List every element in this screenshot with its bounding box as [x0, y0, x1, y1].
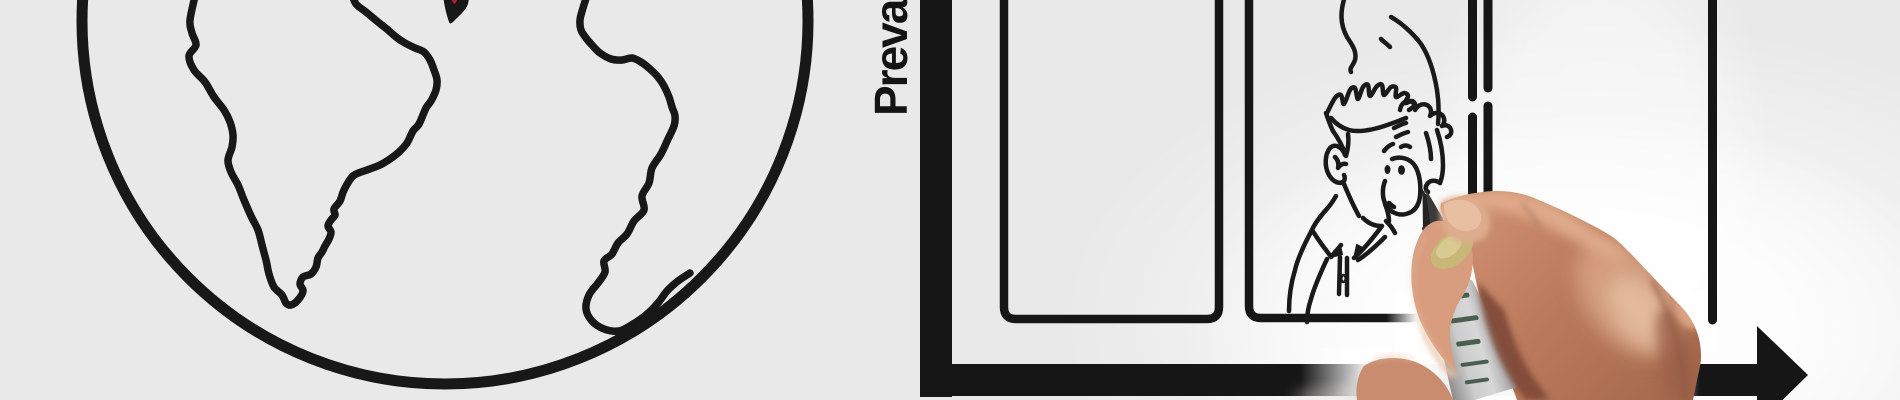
svg-text:Prevalence: Prevalence [865, 0, 917, 116]
